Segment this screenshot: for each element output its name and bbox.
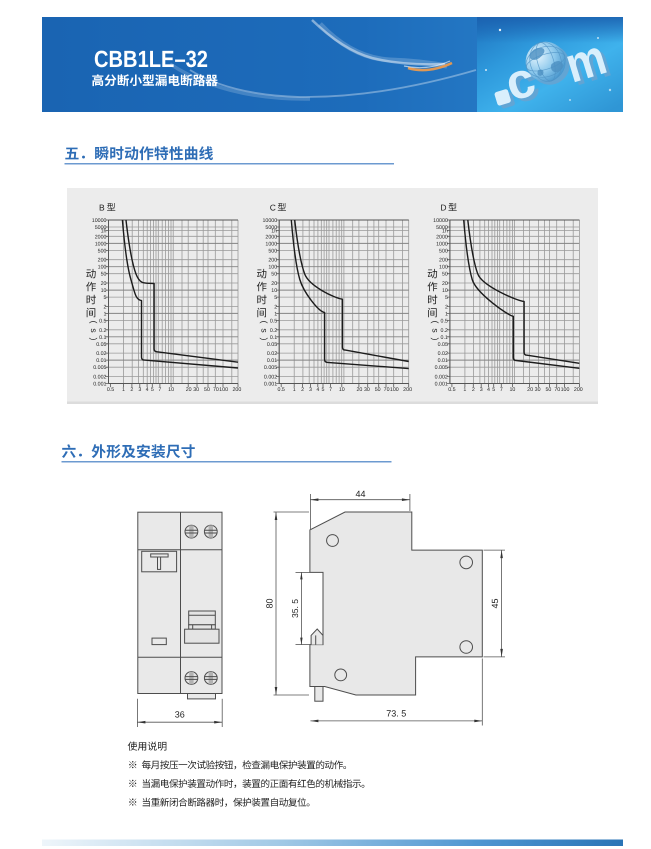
svg-text:2: 2 xyxy=(301,387,304,393)
svg-text:1000: 1000 xyxy=(265,241,277,247)
svg-text:0.02: 0.02 xyxy=(96,351,106,357)
svg-text:50: 50 xyxy=(545,387,551,393)
svg-text:100: 100 xyxy=(98,265,107,271)
svg-text:10000: 10000 xyxy=(92,218,107,224)
svg-text:D: D xyxy=(440,203,446,213)
svg-text:2: 2 xyxy=(274,304,277,310)
svg-text:70: 70 xyxy=(554,387,560,393)
svg-text:0.5: 0.5 xyxy=(448,387,455,393)
svg-text:(: ( xyxy=(89,321,99,324)
svg-text:0.1: 0.1 xyxy=(441,335,448,341)
svg-text:2000: 2000 xyxy=(436,234,448,240)
svg-text:): ) xyxy=(260,338,270,341)
svg-text:5: 5 xyxy=(151,387,154,393)
svg-text:0.001: 0.001 xyxy=(93,382,106,388)
svg-text:10: 10 xyxy=(339,387,345,393)
svg-text:0.5: 0.5 xyxy=(99,319,106,325)
svg-text:0.2: 0.2 xyxy=(99,328,106,334)
svg-text:0.01: 0.01 xyxy=(96,358,106,364)
svg-text:1: 1 xyxy=(293,387,296,393)
svg-text:5: 5 xyxy=(104,295,107,301)
svg-text:100: 100 xyxy=(561,387,570,393)
svg-text:10: 10 xyxy=(271,288,277,294)
svg-text:50: 50 xyxy=(375,387,381,393)
svg-text:0.005: 0.005 xyxy=(435,365,448,371)
svg-text:20: 20 xyxy=(356,387,362,393)
svg-text:20: 20 xyxy=(101,281,107,287)
svg-text:0.02: 0.02 xyxy=(267,351,277,357)
svg-text:200: 200 xyxy=(232,387,241,393)
svg-text:20: 20 xyxy=(271,281,277,287)
svg-text:35. 5: 35. 5 xyxy=(290,599,300,618)
svg-text:0.5: 0.5 xyxy=(270,319,277,325)
svg-text:200: 200 xyxy=(98,258,107,264)
svg-text:50: 50 xyxy=(271,272,277,278)
svg-text:4: 4 xyxy=(316,387,319,393)
svg-text:0.2: 0.2 xyxy=(270,328,277,334)
svg-text:100: 100 xyxy=(219,387,228,393)
svg-text:100: 100 xyxy=(268,265,277,271)
svg-text:C: C xyxy=(270,203,276,213)
svg-text:(: ( xyxy=(260,321,270,324)
svg-text:0.1: 0.1 xyxy=(99,335,106,341)
svg-text:4: 4 xyxy=(487,387,490,393)
svg-text:CBB1LE–32: CBB1LE–32 xyxy=(94,46,208,72)
svg-text:0.002: 0.002 xyxy=(93,375,106,381)
svg-text:30: 30 xyxy=(193,387,199,393)
svg-text:5: 5 xyxy=(322,387,325,393)
svg-text:100: 100 xyxy=(390,387,399,393)
svg-text:0.002: 0.002 xyxy=(264,375,277,381)
svg-text:5: 5 xyxy=(274,295,277,301)
svg-text:200: 200 xyxy=(439,258,448,264)
svg-text:200: 200 xyxy=(403,387,412,393)
svg-text:10: 10 xyxy=(509,387,515,393)
svg-text:2: 2 xyxy=(130,387,133,393)
svg-text:500: 500 xyxy=(439,248,448,254)
svg-text:80: 80 xyxy=(265,598,275,608)
svg-text:0.05: 0.05 xyxy=(96,342,106,348)
svg-text:3: 3 xyxy=(138,387,141,393)
svg-text:50: 50 xyxy=(442,272,448,278)
svg-text:): ) xyxy=(430,338,440,341)
svg-text:30: 30 xyxy=(535,387,541,393)
svg-text:44: 44 xyxy=(355,489,365,499)
svg-text:1000: 1000 xyxy=(95,241,107,247)
svg-text:50: 50 xyxy=(204,387,210,393)
svg-text:0.1: 0.1 xyxy=(270,335,277,341)
svg-text:0.5: 0.5 xyxy=(441,319,448,325)
svg-text:1: 1 xyxy=(274,311,277,317)
svg-text:s: s xyxy=(89,328,99,332)
svg-text:0.02: 0.02 xyxy=(438,351,448,357)
svg-text:70: 70 xyxy=(213,387,219,393)
svg-text:2: 2 xyxy=(472,387,475,393)
svg-text:50: 50 xyxy=(101,272,107,278)
svg-text:2: 2 xyxy=(104,304,107,310)
svg-text:1: 1 xyxy=(463,387,466,393)
svg-text:0.2: 0.2 xyxy=(441,328,448,334)
svg-text:20: 20 xyxy=(442,281,448,287)
svg-text:0.01: 0.01 xyxy=(438,358,448,364)
svg-text:200: 200 xyxy=(574,387,583,393)
svg-text:0.5: 0.5 xyxy=(278,387,285,393)
svg-text:70: 70 xyxy=(384,387,390,393)
svg-text:3: 3 xyxy=(309,387,312,393)
svg-text:2000: 2000 xyxy=(95,234,107,240)
svg-text:20: 20 xyxy=(527,387,533,393)
svg-text:1: 1 xyxy=(445,311,448,317)
svg-text:7: 7 xyxy=(158,387,161,393)
svg-text:1: 1 xyxy=(104,311,107,317)
svg-text:200: 200 xyxy=(268,258,277,264)
svg-text:1000: 1000 xyxy=(436,241,448,247)
svg-text:5: 5 xyxy=(492,387,495,393)
svg-text:7: 7 xyxy=(500,387,503,393)
svg-text:30: 30 xyxy=(364,387,370,393)
svg-text:2: 2 xyxy=(445,304,448,310)
svg-text:500: 500 xyxy=(268,248,277,254)
svg-text:100: 100 xyxy=(439,265,448,271)
svg-text:s: s xyxy=(430,328,440,332)
svg-text:(: ( xyxy=(430,321,440,324)
svg-text:10: 10 xyxy=(168,387,174,393)
svg-text:45: 45 xyxy=(490,598,500,608)
svg-text:): ) xyxy=(89,338,99,341)
svg-text:10000: 10000 xyxy=(262,218,277,224)
svg-text:0.05: 0.05 xyxy=(267,342,277,348)
svg-text:2000: 2000 xyxy=(265,234,277,240)
svg-text:0.5: 0.5 xyxy=(107,387,114,393)
svg-text:1: 1 xyxy=(122,387,125,393)
svg-text:0.001: 0.001 xyxy=(435,382,448,388)
svg-text:73. 5: 73. 5 xyxy=(386,709,406,719)
svg-text:0.05: 0.05 xyxy=(438,342,448,348)
svg-text:s: s xyxy=(260,328,270,332)
svg-text:10: 10 xyxy=(442,288,448,294)
svg-text:5: 5 xyxy=(445,295,448,301)
svg-text:36: 36 xyxy=(175,709,185,719)
svg-text:0.005: 0.005 xyxy=(93,365,106,371)
svg-text:10: 10 xyxy=(101,288,107,294)
svg-text:0.001: 0.001 xyxy=(264,382,277,388)
svg-text:0.01: 0.01 xyxy=(267,358,277,364)
svg-text:500: 500 xyxy=(98,248,107,254)
svg-text:0.002: 0.002 xyxy=(435,375,448,381)
svg-text:4: 4 xyxy=(146,387,149,393)
svg-text:20: 20 xyxy=(186,387,192,393)
svg-text:0.005: 0.005 xyxy=(264,365,277,371)
svg-text:B: B xyxy=(99,203,105,213)
svg-text:7: 7 xyxy=(329,387,332,393)
svg-text:10000: 10000 xyxy=(433,218,448,224)
svg-text:3: 3 xyxy=(480,387,483,393)
